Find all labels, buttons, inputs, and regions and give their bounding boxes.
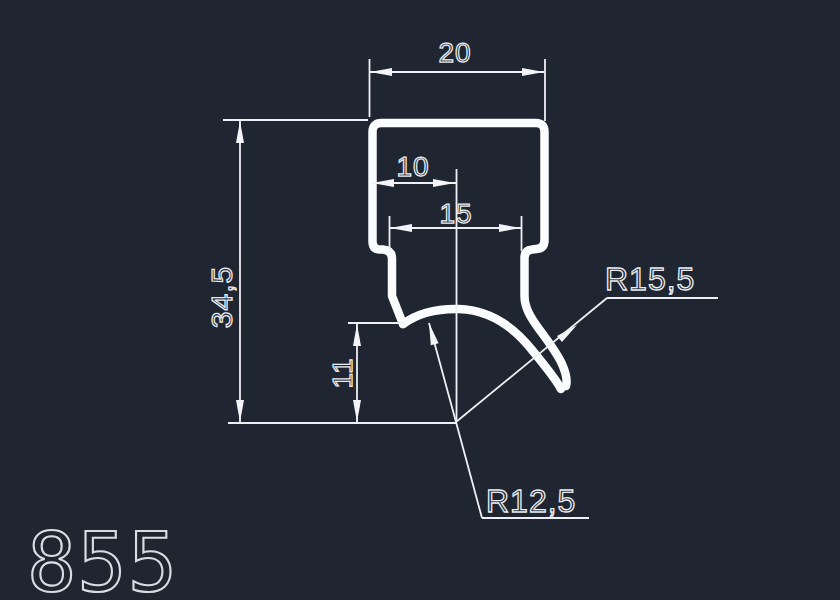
technical-drawing: 20 10 15 34,5 11 R15,5 (0, 0, 840, 600)
dim-label-total-height: 34,5 (205, 266, 238, 328)
cad-drawing-canvas: 20 10 15 34,5 11 R15,5 (0, 0, 840, 600)
dim-label-half-width: 10 (396, 151, 429, 182)
dim-label-leg-span: 15 (439, 198, 472, 229)
radius-label-outer: R15,5 (605, 261, 695, 297)
arrowhead-10-right (433, 179, 455, 187)
dim-label-lip-height: 11 (327, 357, 358, 388)
radius-label-inner: R12,5 (486, 483, 576, 519)
arrowhead-11-top (353, 324, 361, 346)
arrowhead-34-5-top (236, 121, 244, 143)
arrowhead-15-left (390, 224, 412, 232)
radius-leader-inner-down (456, 422, 482, 518)
arrowhead-34-5-bottom (236, 400, 244, 422)
arrowhead-radius-inner (429, 323, 439, 345)
dim-label-cap-width: 20 (438, 37, 471, 68)
arrowhead-20-right (522, 68, 544, 76)
part-number-label: 855 (27, 515, 178, 600)
arrowhead-11-bottom (353, 400, 361, 422)
arrowhead-20-left (370, 68, 392, 76)
arrowhead-15-right (499, 224, 521, 232)
arrowhead-radius-outer (557, 325, 577, 342)
